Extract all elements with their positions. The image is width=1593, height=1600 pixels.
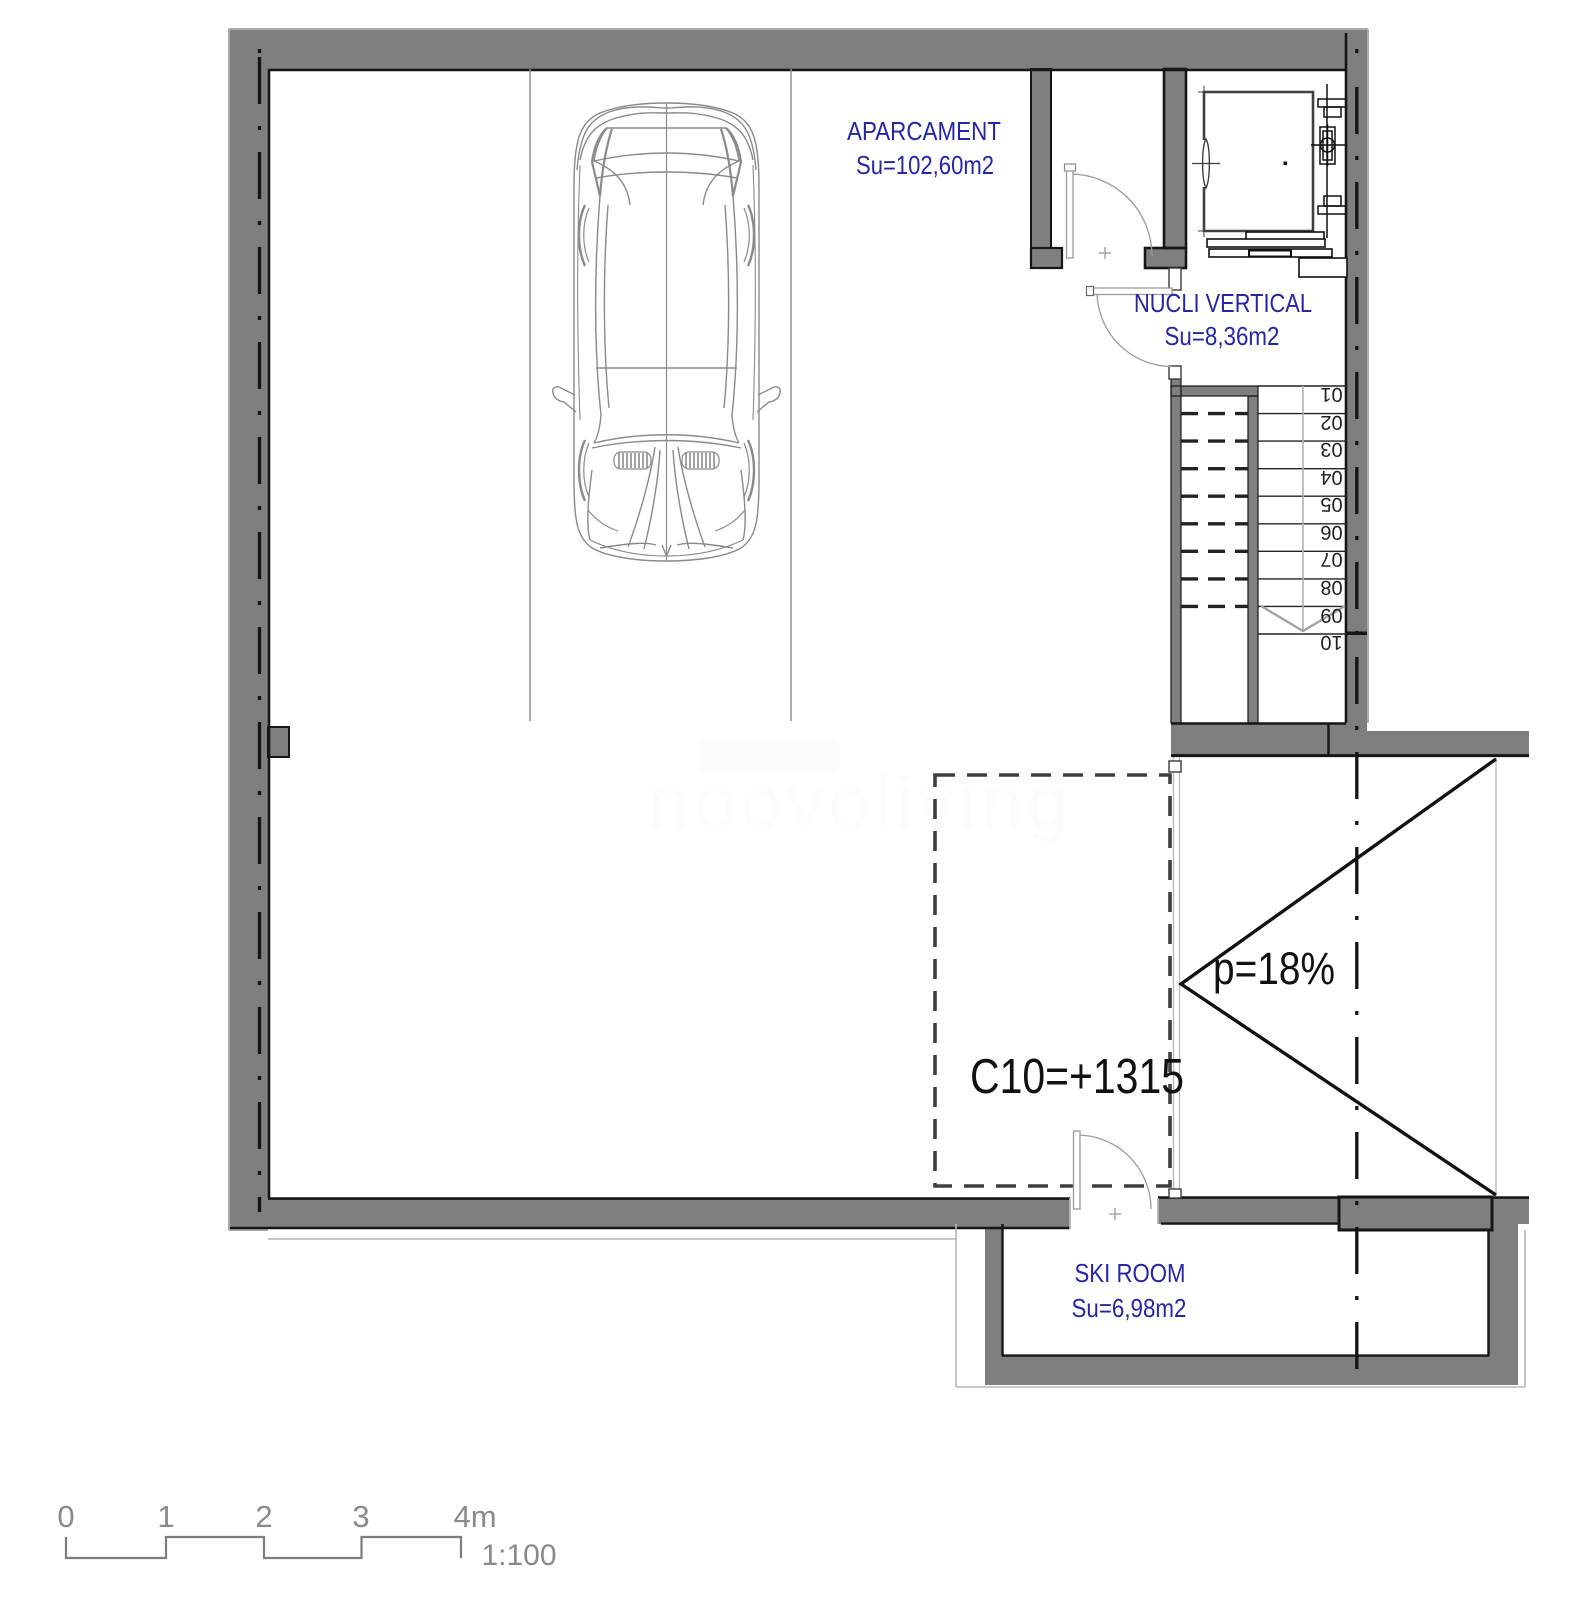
svg-text:Su=8,36m2: Su=8,36m2 — [1165, 321, 1280, 351]
svg-text:07: 07 — [1320, 548, 1342, 570]
svg-text:APARCAMENT: APARCAMENT — [847, 116, 1001, 146]
svg-text:04: 04 — [1320, 466, 1342, 488]
svg-text:p=18%: p=18% — [1213, 943, 1335, 994]
svg-text:0: 0 — [57, 1499, 74, 1534]
svg-text:Su=6,98m2: Su=6,98m2 — [1072, 1293, 1187, 1323]
svg-text:09: 09 — [1320, 604, 1342, 626]
svg-text:02: 02 — [1320, 411, 1342, 433]
svg-text:1:100: 1:100 — [481, 1539, 556, 1572]
svg-text:2: 2 — [255, 1499, 272, 1534]
svg-text:4m: 4m — [453, 1499, 496, 1534]
svg-text:03: 03 — [1320, 438, 1342, 460]
svg-text:05: 05 — [1320, 493, 1342, 515]
svg-text:1: 1 — [157, 1499, 174, 1534]
svg-text:3: 3 — [352, 1499, 369, 1534]
svg-text:SKI ROOM: SKI ROOM — [1075, 1258, 1186, 1288]
svg-text:NUCLI VERTICAL: NUCLI VERTICAL — [1134, 288, 1312, 318]
svg-text:Su=102,60m2: Su=102,60m2 — [856, 150, 994, 180]
svg-text:10: 10 — [1320, 631, 1342, 653]
svg-text:01: 01 — [1320, 383, 1342, 405]
svg-text:08: 08 — [1320, 576, 1342, 598]
svg-text:C10=+1315: C10=+1315 — [970, 1050, 1184, 1104]
svg-text:06: 06 — [1320, 521, 1342, 543]
